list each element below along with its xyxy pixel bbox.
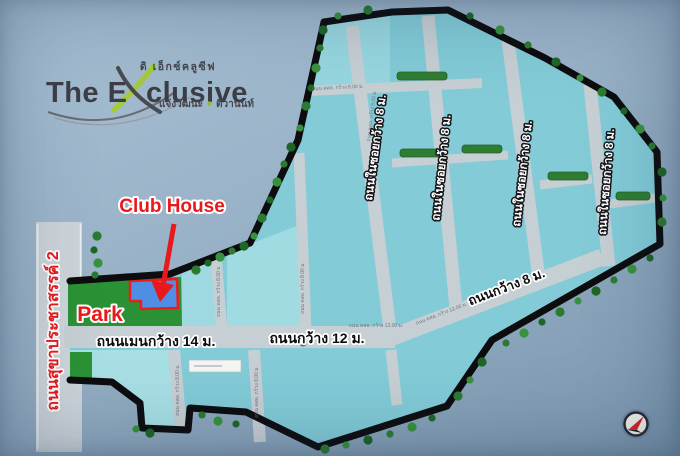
tree-icon (648, 142, 655, 149)
tree-icon (363, 435, 372, 444)
road-annotation: ถนน คสล. กว้าง 8.00 ม. (215, 265, 222, 317)
tree-icon (239, 241, 248, 250)
tree-icon (232, 420, 239, 427)
tree-icon (318, 25, 327, 34)
tree-icon (228, 247, 235, 254)
park-label: Park (77, 303, 123, 326)
club-house-label: Club House (119, 196, 225, 217)
tree-icon (250, 232, 257, 239)
logo-subtitle-left: แจ้งวัฒนะ (159, 98, 203, 110)
tree-icon (538, 318, 545, 325)
logo-subtitle-right: ติวานนท์ (216, 98, 254, 110)
logo-name-prefix: The E (46, 77, 127, 109)
main-road-label: ถนนเมนกว้าง 14 ม. (97, 333, 216, 349)
tree-icon (524, 41, 531, 48)
tree-icon (266, 196, 273, 203)
tree-icon (466, 376, 473, 383)
soi-road (391, 350, 397, 405)
tree-icon (555, 307, 564, 316)
logo-thai-name: ดิ เอ็กซ์คลูซีฟ (140, 59, 216, 74)
green-strip (70, 352, 92, 380)
plot-placard (189, 360, 241, 372)
tree-icon (477, 357, 486, 366)
project-logo: The E clusive ดิ เอ็กซ์คลูซีฟ แจ้งวัฒนะ … (46, 59, 254, 125)
road-annotation: ถนน คสล. กว้าง 8.00 ม. (253, 366, 260, 418)
tree-icon (657, 167, 666, 176)
tree-icon (334, 12, 341, 19)
tree-icon (90, 246, 97, 253)
north-compass-icon (621, 409, 651, 439)
tree-icon (296, 124, 303, 131)
tree-icon (428, 414, 435, 421)
tree-icon (280, 160, 287, 167)
tree-icon (204, 259, 211, 266)
tree-icon (646, 254, 653, 261)
tree-icon (620, 107, 627, 114)
tree-icon (659, 194, 666, 201)
hedge-row (548, 172, 588, 180)
tree-icon (591, 286, 600, 295)
public-road-label: ถนนสุขาประชาสรรค์ 2 (43, 251, 63, 411)
tree-icon (610, 276, 617, 283)
tree-icon (551, 57, 560, 66)
tree-icon (386, 430, 393, 437)
tree-icon (311, 63, 320, 72)
hedge-row (616, 192, 650, 200)
tree-icon (132, 425, 139, 432)
tree-icon (342, 441, 349, 448)
tree-icon (574, 297, 581, 304)
road-annotation: ถนน คสล. กว้าง 8.00 ม. (299, 262, 306, 314)
tree-icon (495, 25, 504, 34)
hedge-row (397, 72, 447, 80)
road-12m-label: ถนนกว้าง 12 ม. (269, 330, 364, 346)
estate-sign-photo: ถนน คสล. กว้าง 8.00 ม. ถนน คสล. กว้าง 8.… (0, 0, 680, 456)
logo-dot-icon (207, 101, 211, 105)
tree-icon (657, 217, 666, 226)
tree-icon (320, 444, 329, 453)
tree-icon (92, 231, 101, 240)
tree-icon (316, 44, 323, 51)
tree-icon (213, 416, 222, 425)
tree-icon (91, 271, 98, 278)
tree-icon (215, 252, 224, 261)
tree-icon (286, 142, 295, 151)
tree-icon (502, 339, 509, 346)
tree-icon (257, 213, 266, 222)
hedge-row (462, 145, 502, 153)
tree-icon (519, 328, 528, 337)
tree-icon (576, 74, 583, 81)
road-annotation: ถนน คสล. กว้าง 12.00 ม. (349, 322, 404, 329)
tree-icon (597, 87, 606, 96)
tree-icon (407, 422, 416, 431)
tree-icon (93, 258, 102, 267)
tree-icon (191, 265, 200, 274)
road-annotation: ถนน คสล. กว้าง 8.00 ม. (174, 364, 181, 416)
tree-icon (272, 177, 281, 186)
tree-icon (145, 428, 154, 437)
tree-icon (635, 124, 644, 133)
tree-icon (466, 12, 473, 19)
tree-icon (301, 101, 310, 110)
master-plan-map: ถนน คสล. กว้าง 8.00 ม. ถนน คสล. กว้าง 8.… (0, 0, 680, 456)
tree-icon (627, 264, 636, 273)
tree-icon (453, 391, 462, 400)
tree-icon (198, 411, 205, 418)
tree-icon (363, 5, 372, 14)
